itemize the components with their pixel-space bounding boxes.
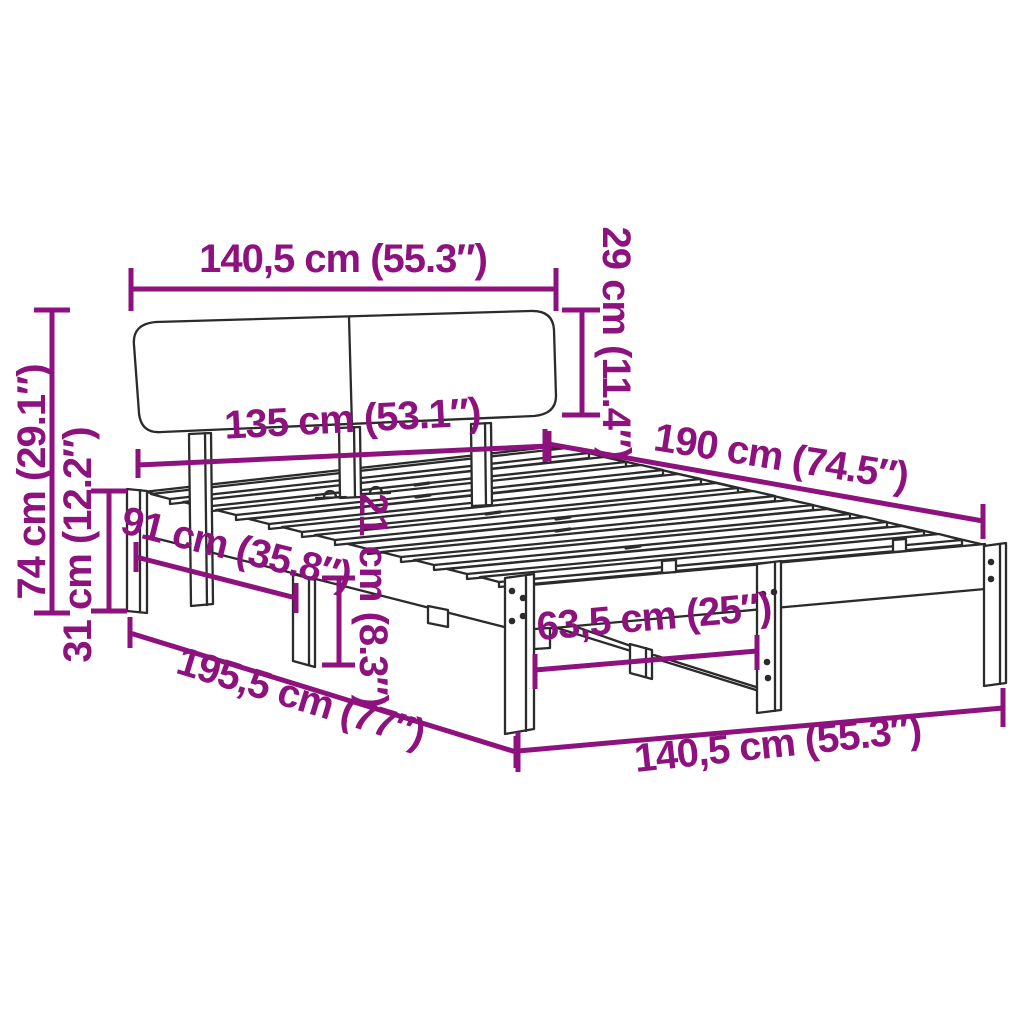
screw-hole	[509, 618, 516, 625]
screw-hole	[765, 675, 772, 682]
foot-left-leg	[505, 574, 534, 734]
screw-hole	[771, 589, 778, 596]
headboard-post-right-edge	[485, 423, 486, 505]
foot-right-leg	[984, 543, 1006, 686]
screw-hole	[988, 576, 995, 583]
dim-label-headboard-height: 29 cm (11.4″)	[594, 227, 638, 460]
screw-hole	[509, 588, 516, 595]
product-dimension-diagram: 140,5 cm (55.3″) 29 cm (11.4″) 74 cm (29…	[0, 0, 1024, 1024]
foot-middle-leg	[757, 561, 781, 713]
rail-bracket-d	[893, 539, 906, 552]
bed-frame-illustration: 140,5 cm (55.3″) 29 cm (11.4″) 74 cm (29…	[0, 0, 1024, 1024]
screw-hole	[988, 559, 995, 566]
rail-bracket-a	[428, 606, 448, 627]
rail-bracket-c	[662, 560, 676, 573]
dim-label-clearance-height: 21 cm (8.3″)	[351, 493, 395, 707]
screw-hole	[520, 613, 527, 620]
dim-label-total-height: 74 cm (29.1″)	[10, 364, 54, 599]
screw-hole	[764, 659, 771, 666]
dim-label-overall-width: 140,5 cm (55.3″)	[632, 707, 923, 781]
dim-label-headboard-width: 140,5 cm (55.3″)	[199, 237, 487, 281]
headboard-post-right	[471, 423, 492, 506]
dim-label-base-height: 31 cm (12.2″)	[56, 427, 100, 662]
screw-hole	[520, 595, 527, 602]
